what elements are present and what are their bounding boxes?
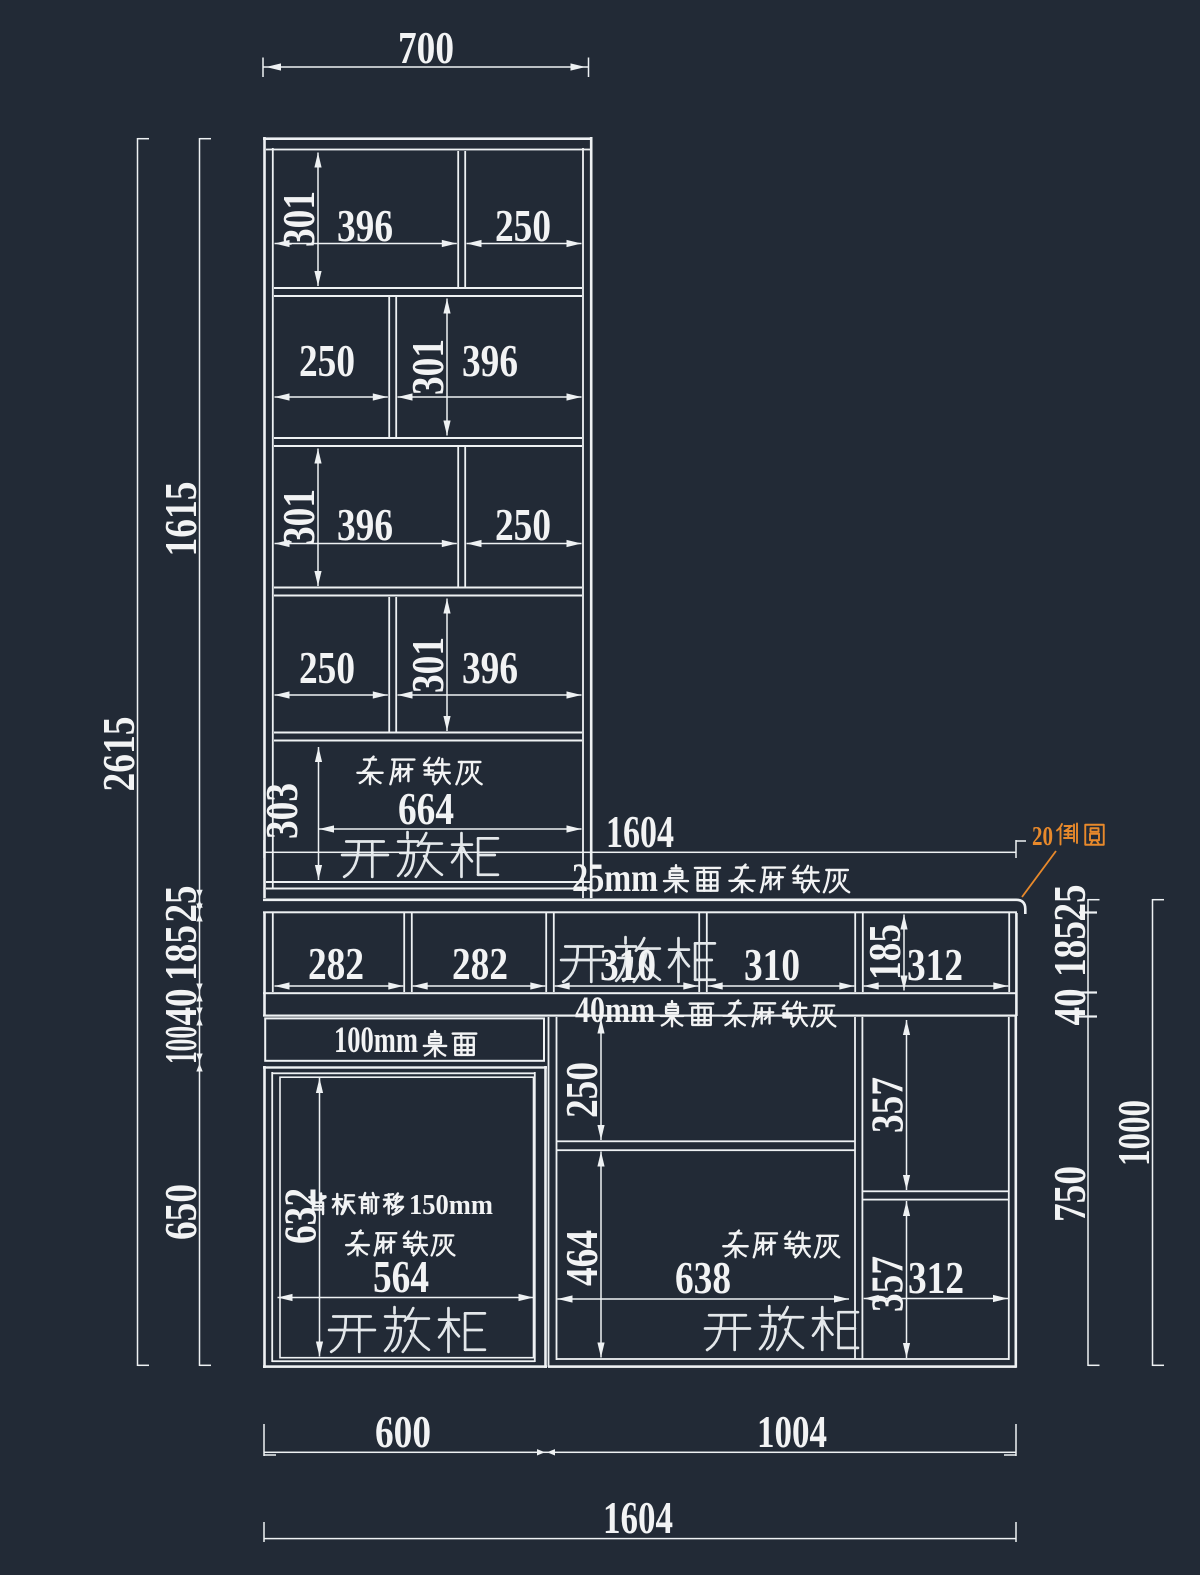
svg-text:357: 357 <box>863 1256 913 1312</box>
svg-text:664: 664 <box>398 784 454 834</box>
svg-text:301: 301 <box>274 489 324 545</box>
svg-text:250: 250 <box>299 643 355 693</box>
svg-text:25mm: 25mm <box>572 855 658 900</box>
svg-text:1604: 1604 <box>603 1493 673 1543</box>
svg-text:40: 40 <box>1045 989 1095 1026</box>
svg-text:301: 301 <box>403 637 453 693</box>
svg-text:150mm: 150mm <box>409 1189 493 1221</box>
svg-text:1604: 1604 <box>606 807 674 857</box>
svg-text:250: 250 <box>299 336 355 386</box>
svg-text:25: 25 <box>156 886 206 923</box>
svg-text:312: 312 <box>908 1253 964 1303</box>
svg-text:632: 632 <box>276 1188 326 1244</box>
svg-text:310: 310 <box>744 940 800 990</box>
svg-text:20: 20 <box>1032 821 1053 851</box>
svg-text:357: 357 <box>863 1077 913 1133</box>
svg-text:282: 282 <box>452 939 508 989</box>
svg-text:40: 40 <box>156 989 206 1026</box>
svg-text:25: 25 <box>1045 885 1095 922</box>
svg-text:464: 464 <box>557 1230 607 1286</box>
svg-text:301: 301 <box>403 339 453 395</box>
svg-text:396: 396 <box>337 201 393 251</box>
svg-text:1615: 1615 <box>156 482 206 557</box>
svg-text:303: 303 <box>257 783 307 839</box>
svg-text:250: 250 <box>557 1062 607 1118</box>
svg-text:185: 185 <box>156 925 206 981</box>
svg-text:40mm: 40mm <box>575 990 655 1031</box>
svg-text:185: 185 <box>1045 921 1095 977</box>
svg-text:250: 250 <box>495 201 551 251</box>
svg-text:396: 396 <box>462 336 518 386</box>
svg-text:310: 310 <box>600 940 656 990</box>
svg-text:282: 282 <box>308 939 364 989</box>
svg-text:396: 396 <box>337 500 393 550</box>
svg-text:250: 250 <box>495 500 551 550</box>
svg-text:185: 185 <box>860 924 910 980</box>
svg-text:100mm: 100mm <box>334 1020 418 1061</box>
svg-text:638: 638 <box>675 1253 731 1303</box>
svg-text:2615: 2615 <box>94 717 144 792</box>
svg-text:396: 396 <box>462 643 518 693</box>
svg-text:564: 564 <box>373 1252 429 1302</box>
svg-text:312: 312 <box>907 940 963 990</box>
svg-text:700: 700 <box>398 23 454 73</box>
svg-text:600: 600 <box>375 1407 431 1457</box>
svg-text:301: 301 <box>274 191 324 247</box>
svg-text:750: 750 <box>1045 1166 1095 1222</box>
svg-text:650: 650 <box>156 1184 206 1240</box>
svg-text:1004: 1004 <box>757 1407 827 1457</box>
svg-text:1000: 1000 <box>1109 1100 1159 1166</box>
svg-text:100: 100 <box>156 1026 206 1064</box>
